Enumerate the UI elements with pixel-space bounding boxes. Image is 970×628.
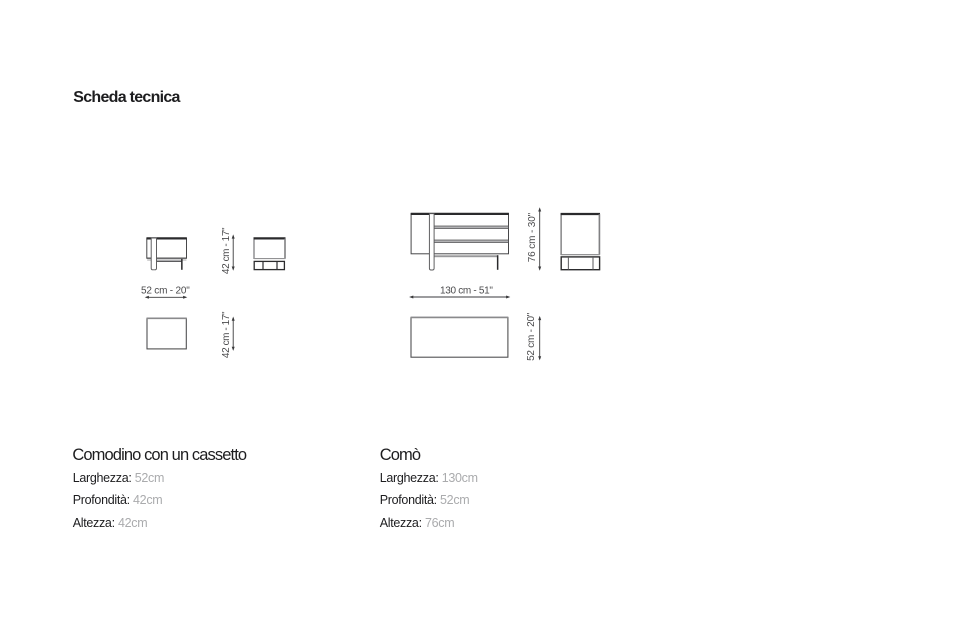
svg-text:76 cm - 30": 76 cm - 30"	[527, 212, 538, 262]
svg-text:42 cm - 17": 42 cm - 17"	[221, 311, 232, 358]
svg-text:52 cm - 20": 52 cm - 20"	[141, 286, 190, 297]
svg-text:52 cm - 20": 52 cm - 20"	[526, 312, 537, 361]
svg-text:42 cm - 17": 42 cm - 17"	[221, 227, 232, 274]
svg-text:130 cm - 51": 130 cm - 51"	[440, 285, 493, 296]
